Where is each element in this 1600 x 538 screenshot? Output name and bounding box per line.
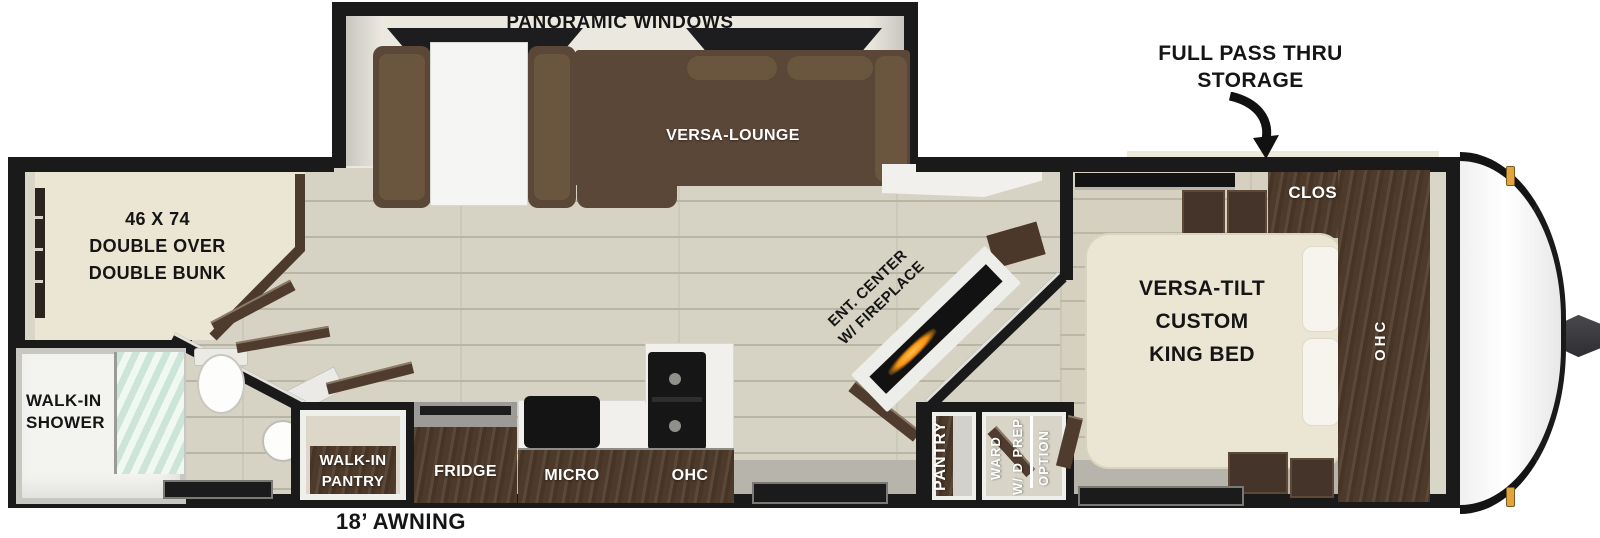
full-pass-thru-line1: FULL PASS THRU <box>1118 40 1383 67</box>
walk-in-pantry-label: WALK-IN PANTRY <box>304 450 402 492</box>
bedroom-ohc-label: OHC <box>1372 308 1396 372</box>
full-pass-thru-label: FULL PASS THRU STORAGE <box>1118 40 1383 94</box>
ward-label-rule <box>1030 416 1033 488</box>
king-bed-line2: CUSTOM <box>1092 305 1312 338</box>
dinette-table <box>430 42 528 206</box>
versa-lounge-label: VERSA-LOUNGE <box>653 126 813 147</box>
king-bed-line3: KING BED <box>1092 338 1312 371</box>
king-bed-label: VERSA-TILT CUSTOM KING BED <box>1092 272 1312 371</box>
closet-drawer-1 <box>1182 190 1225 236</box>
toilet-bowl <box>197 354 245 414</box>
sink-drain-2 <box>669 420 681 432</box>
bedroom-tv <box>1075 173 1235 187</box>
dinette-bench-left-cushion <box>379 54 425 200</box>
walkin-pantry-line1: WALK-IN <box>304 450 402 471</box>
bedroom-divider-wall <box>1060 172 1073 280</box>
rv-floorplan: 46 X 74 DOUBLE OVER DOUBLE BUNK VERSA-LO… <box>0 0 1600 538</box>
bunk-label-line3: DOUBLE BUNK <box>40 260 275 287</box>
clearance-light-top <box>1506 166 1515 186</box>
shower-label-line1: WALK-IN <box>26 390 134 412</box>
bedroom-entry-mat <box>1078 486 1244 506</box>
bunk-label: 46 X 74 DOUBLE OVER DOUBLE BUNK <box>40 206 275 287</box>
dinette-bench-right-cushion <box>534 54 570 200</box>
walkin-pantry-line2: PANTRY <box>304 471 402 492</box>
walk-in-shower-label: WALK-IN SHOWER <box>26 390 134 434</box>
sink-drain-1 <box>669 373 681 385</box>
bath-mat <box>163 480 273 499</box>
micro-label: MICRO <box>535 466 609 487</box>
entry-mat <box>752 482 888 504</box>
bunk-label-line2: DOUBLE OVER <box>40 233 275 260</box>
ward-label-line3: OPTION <box>1036 418 1054 498</box>
pantry-closet-label: PANTRY <box>932 414 976 498</box>
awning-label: 18’ AWNING <box>306 508 496 536</box>
fridge-label: FRIDGE <box>414 462 517 483</box>
bunk-label-line1: 46 X 74 <box>40 206 275 233</box>
panoramic-windows-label: PANORAMIC WINDOWS <box>462 11 778 35</box>
storage-arrow-icon <box>1222 92 1282 160</box>
top-wall-left <box>8 157 334 172</box>
sofa-headrest-1 <box>687 56 777 80</box>
full-pass-thru-line2: STORAGE <box>1118 67 1383 94</box>
ward-label-line2: W/ D PREP <box>1010 414 1028 500</box>
front-cap <box>1460 152 1566 514</box>
sofa-armrest <box>875 56 907 182</box>
clearance-light-bottom <box>1506 487 1515 507</box>
nightstand-2 <box>1290 458 1334 498</box>
cooktop <box>524 396 600 448</box>
king-bed-line1: VERSA-TILT <box>1092 272 1312 305</box>
dinette-bench-right <box>528 46 576 208</box>
shower-label-line2: SHOWER <box>26 412 134 434</box>
ward-label-line1: WARD <box>988 418 1006 498</box>
closet-drawer-2 <box>1227 190 1267 236</box>
dinette-bench-left <box>373 46 431 208</box>
fridge-door <box>420 406 511 415</box>
sink-divider <box>652 397 702 402</box>
sofa-headrest-2 <box>787 56 873 80</box>
kitchen-ohc-label: OHC <box>658 466 722 487</box>
